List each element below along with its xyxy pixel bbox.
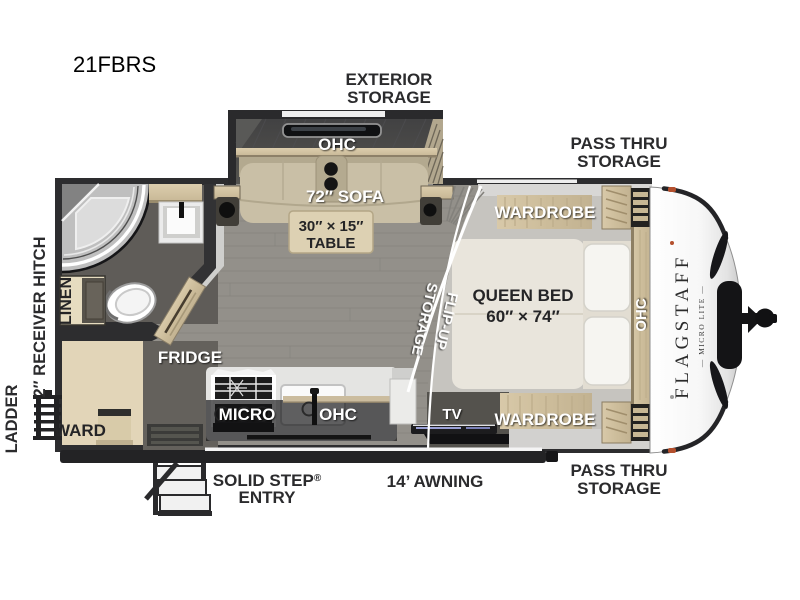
svg-text:WARDROBE: WARDROBE bbox=[494, 410, 595, 429]
svg-text:MICRO: MICRO bbox=[219, 405, 276, 424]
svg-text:PASS THRU: PASS THRU bbox=[571, 134, 668, 153]
svg-text:STORAGE: STORAGE bbox=[577, 479, 661, 498]
svg-text:OHC: OHC bbox=[633, 298, 650, 332]
svg-text:14’ AWNING: 14’ AWNING bbox=[387, 472, 484, 491]
svg-text:30″ × 15″: 30″ × 15″ bbox=[299, 218, 364, 235]
svg-text:PASS THRU: PASS THRU bbox=[571, 461, 668, 480]
svg-text:— MICRO LITE —: — MICRO LITE — bbox=[697, 285, 706, 368]
svg-text:60″ × 74″: 60″ × 74″ bbox=[486, 307, 559, 326]
svg-text:LINEN: LINEN bbox=[58, 277, 75, 325]
svg-text:WARD: WARD bbox=[54, 421, 106, 440]
svg-text:TABLE: TABLE bbox=[307, 235, 356, 252]
svg-text:FRIDGE: FRIDGE bbox=[158, 348, 222, 367]
svg-text:QUEEN BED: QUEEN BED bbox=[472, 286, 573, 305]
svg-text:21FBRS: 21FBRS bbox=[73, 52, 156, 77]
svg-text:ENTRY: ENTRY bbox=[239, 488, 297, 507]
svg-text:72″ SOFA: 72″ SOFA bbox=[306, 187, 384, 206]
svg-text:STORAGE: STORAGE bbox=[577, 152, 661, 171]
svg-text:OHC: OHC bbox=[319, 405, 357, 424]
svg-text:TV: TV bbox=[442, 406, 461, 423]
svg-text:FLAGSTAFF: FLAGSTAFF bbox=[672, 253, 693, 399]
svg-text:EXTERIOR: EXTERIOR bbox=[346, 70, 433, 89]
svg-text:2″ RECEIVER HITCH: 2″ RECEIVER HITCH bbox=[31, 236, 49, 397]
svg-text:WARDROBE: WARDROBE bbox=[494, 203, 595, 222]
svg-text:STORAGE: STORAGE bbox=[347, 88, 431, 107]
svg-text:OHC: OHC bbox=[318, 135, 356, 154]
svg-text:LADDER: LADDER bbox=[3, 385, 21, 454]
